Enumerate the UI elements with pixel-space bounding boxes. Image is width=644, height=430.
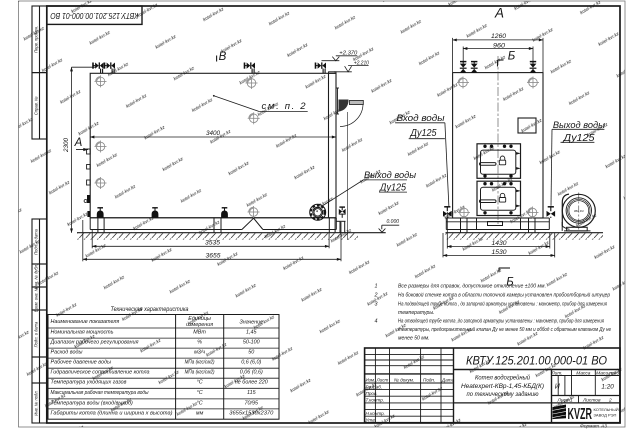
- svg-text:На отводящей трубе котла ,до з: На отводящей трубе котла ,до запорной ар…: [398, 318, 604, 325]
- svg-text:3535: 3535: [205, 240, 221, 247]
- svg-text:МПа (кгс/см2): МПа (кгс/см2): [185, 360, 215, 366]
- svg-text:Подп. и дата: Подп. и дата: [34, 321, 39, 347]
- svg-text:А: А: [494, 6, 504, 21]
- svg-text:Листов: Листов: [582, 397, 601, 403]
- svg-text:Перв. примен.: Перв. примен.: [34, 26, 39, 53]
- svg-text:Инв. № подл.: Инв. № подл.: [34, 390, 39, 415]
- svg-text:°С: °С: [197, 390, 203, 396]
- svg-text:Лит.: Лит.: [550, 370, 562, 376]
- svg-text:0.000: 0.000: [387, 219, 400, 225]
- svg-text:1:20: 1:20: [601, 384, 614, 391]
- svg-text:Взам. инв. №: Взам. инв. №: [34, 286, 39, 312]
- svg-text:%: %: [197, 339, 202, 345]
- svg-text:Все размеры для справок, допус: Все размеры для справок, допустимое откл…: [398, 284, 546, 290]
- svg-text:Рабочее давление воды: Рабочее давление воды: [51, 360, 111, 366]
- svg-text:960: 960: [493, 43, 506, 50]
- svg-text:Гидравлическое сопротивление к: Гидравлическое сопротивление котла: [51, 370, 150, 376]
- svg-text:°С: °С: [197, 400, 203, 406]
- svg-text:3655х1530х2370: 3655х1530х2370: [229, 410, 273, 416]
- svg-text:Диапазон рабочего регулировани: Диапазон рабочего регулирования: [50, 339, 139, 345]
- svg-text:Справ. №: Справ. №: [34, 96, 39, 115]
- svg-text:Выход воды: Выход воды: [364, 170, 416, 180]
- svg-text:Инв. № дубл.: Инв. № дубл.: [34, 264, 39, 289]
- svg-text:В: В: [219, 51, 227, 63]
- svg-text:Вход воды: Вход воды: [397, 113, 445, 123]
- svg-text:Максимальная рабочая температу: Максимальная рабочая температура воды: [51, 390, 149, 396]
- svg-text:Утв.: Утв.: [366, 418, 376, 423]
- svg-text:2: 2: [608, 397, 612, 403]
- svg-text:2: 2: [374, 293, 378, 299]
- svg-text:Температура воды (вход/выход): Температура воды (вход/выход): [51, 400, 134, 406]
- svg-text:Изм.: Изм.: [366, 378, 376, 383]
- svg-text:1530: 1530: [492, 249, 508, 256]
- svg-text:температуры, предохранительный: температуры, предохранительный клапан Ду…: [398, 326, 611, 333]
- svg-text:Ду125: Ду125: [410, 128, 437, 139]
- svg-text:Котел водогрейный: Котел водогрейный: [475, 375, 531, 382]
- svg-text:Пров.: Пров.: [366, 391, 378, 396]
- svg-text:Лист: Лист: [376, 378, 389, 383]
- svg-text:Лист: Лист: [557, 397, 570, 403]
- svg-text:На подводящей трубе котла , д: На подводящей трубе котла , до запорной …: [398, 301, 607, 308]
- svg-text:3: 3: [375, 302, 378, 308]
- svg-text:Подп. и дата: Подп. и дата: [34, 228, 39, 254]
- svg-text:Б: Б: [508, 51, 516, 63]
- svg-text:№ докум.: № докум.: [394, 378, 414, 383]
- svg-text:1260: 1260: [491, 33, 507, 40]
- svg-text:0,06 (0,6): 0,06 (0,6): [240, 370, 263, 376]
- svg-text:°С: °С: [197, 380, 203, 386]
- svg-text:3655: 3655: [206, 253, 222, 260]
- svg-text:Подп.: Подп.: [423, 378, 435, 383]
- svg-text:+2.210: +2.210: [354, 60, 369, 66]
- svg-text:Номинальная мощность: Номинальная мощность: [51, 329, 114, 335]
- svg-text:+2.370: +2.370: [339, 50, 357, 56]
- svg-text:0,6 (6,0): 0,6 (6,0): [241, 360, 261, 366]
- svg-text:мм: мм: [196, 410, 204, 416]
- svg-text:Температура уходящих газов: Температура уходящих газов: [51, 380, 127, 386]
- svg-text:Масштаб: Масштаб: [596, 370, 619, 376]
- svg-text:ЗАВОД РЭП: ЗАВОД РЭП: [594, 413, 617, 418]
- svg-text:МВт: МВт: [193, 329, 206, 335]
- svg-text:KVZR: KVZR: [568, 406, 593, 423]
- svg-text:Наименование показателя: Наименование показателя: [51, 319, 120, 325]
- svg-text:температуры.: температуры.: [398, 310, 435, 316]
- svg-text:Габариты котла (длинна и ширин: Габариты котла (длинна и ширина х высота…: [51, 410, 173, 416]
- svg-text:КВЦ 4М: КВЦ 4М: [574, 209, 583, 213]
- svg-text:менее 50 мм.: менее 50 мм.: [398, 336, 430, 342]
- svg-text:2300: 2300: [63, 137, 70, 153]
- svg-text:1: 1: [375, 284, 378, 290]
- svg-text:50-100: 50-100: [243, 339, 260, 345]
- svg-text:Дата: Дата: [441, 378, 455, 383]
- svg-text:Н.контр.: Н.контр.: [366, 411, 385, 416]
- svg-text:Т.контр.: Т.контр.: [366, 398, 385, 403]
- svg-text:115: 115: [247, 390, 257, 396]
- svg-text:А3: А3: [600, 424, 607, 430]
- svg-text:3400: 3400: [206, 130, 221, 137]
- svg-text:50: 50: [248, 350, 254, 356]
- svg-text:см. п. 2: см. п. 2: [262, 101, 307, 112]
- svg-text:КВТУ.125.201.00.000-01 ВО: КВТУ.125.201.00.000-01 ВО: [50, 11, 138, 20]
- svg-text:Heatexpert-КВр-1,45-КБД(К): Heatexpert-КВр-1,45-КБД(К): [461, 383, 544, 390]
- svg-text:1430: 1430: [492, 240, 508, 247]
- svg-text:измерения: измерения: [186, 322, 213, 328]
- svg-text:м3/ч: м3/ч: [194, 350, 205, 356]
- svg-text:А: А: [74, 137, 83, 149]
- svg-text:Техническая характеристика: Техническая характеристика: [111, 307, 190, 313]
- svg-text:Выход воды: Выход воды: [553, 120, 605, 130]
- svg-text:Формат: Формат: [580, 424, 599, 430]
- svg-text:70/95: 70/95: [245, 400, 259, 406]
- svg-text:4: 4: [375, 319, 378, 325]
- svg-text:На боковой стенке котла в обла: На боковой стенке котла в области топочн…: [398, 292, 610, 299]
- svg-text:1: 1: [570, 397, 573, 403]
- svg-text:МПа (кгс/см2): МПа (кгс/см2): [185, 370, 215, 376]
- svg-text:Значение: Значение: [239, 319, 263, 325]
- svg-text:КВТУ.125.201.00.000-01 ВО: КВТУ.125.201.00.000-01 ВО: [466, 354, 607, 368]
- svg-text:не более 220: не более 220: [235, 380, 268, 386]
- svg-text:Масса: Масса: [576, 370, 591, 376]
- svg-text:Расход воды: Расход воды: [51, 350, 83, 356]
- svg-text:1,45: 1,45: [246, 329, 257, 335]
- svg-text:КОТЕЛЬНЫЙ: КОТЕЛЬНЫЙ: [594, 407, 619, 412]
- svg-text:по техническому заданию: по техническому заданию: [467, 391, 539, 398]
- svg-text:Разраб.: Разраб.: [366, 385, 383, 390]
